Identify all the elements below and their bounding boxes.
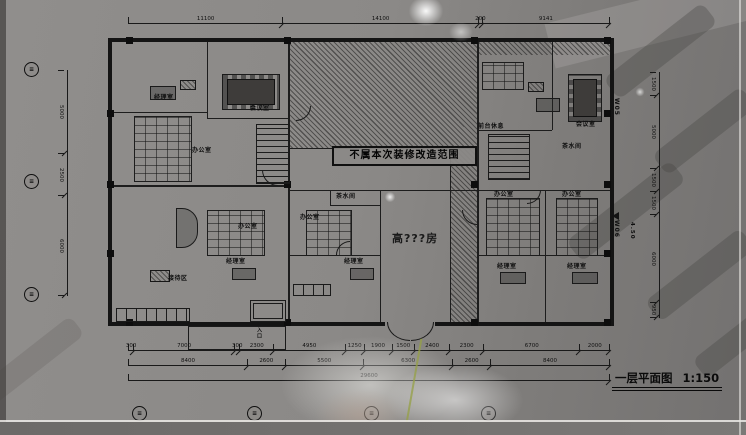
partition <box>207 42 208 118</box>
partition <box>450 148 451 322</box>
dim-value: 11100 <box>197 17 215 22</box>
dim-segment: 7000 <box>134 344 235 350</box>
room-label: 办公室 <box>494 189 514 198</box>
dim-value: 6000 <box>58 239 63 253</box>
dim-value: 1900 <box>371 344 385 349</box>
dim-segment: 1500 <box>650 169 656 192</box>
column <box>604 319 611 326</box>
renovation-scope-banner: 不属本次装修改造范围 <box>332 146 477 166</box>
hatched-box <box>528 82 544 92</box>
watermark-shape <box>692 305 746 379</box>
dim-col-right: 15005000150015006000950 <box>650 72 660 318</box>
desk-cluster <box>134 116 192 182</box>
room-label: 茶水间 <box>336 191 356 200</box>
axis-bubble: ≡ <box>132 406 147 421</box>
desk <box>536 98 560 112</box>
desk <box>232 268 256 280</box>
dim-segment: 6700 <box>484 344 581 350</box>
entrance-door-arc <box>387 322 410 341</box>
axis-bubble: ≡ <box>364 406 379 421</box>
dim-value: 2400 <box>425 344 439 349</box>
dim-value: 6000 <box>650 252 655 266</box>
desk-cluster <box>486 198 540 256</box>
axis-bubble: ≡ <box>247 406 262 421</box>
axis-bubble: ≡ <box>24 287 39 302</box>
dim-value: 8400 <box>543 359 557 364</box>
room-label: 接待区 <box>168 273 188 282</box>
column <box>604 250 611 257</box>
room-label: 经理室 <box>497 261 517 270</box>
room-label: 会议室 <box>250 103 270 112</box>
dim-segment: 2600 <box>453 359 491 365</box>
dim-value: 14100 <box>372 17 390 22</box>
big-room-label: 高???房 <box>392 230 438 246</box>
hatched-area-core <box>288 42 477 148</box>
sofa <box>116 308 190 322</box>
drawing-title-text: 一层平面图 <box>615 371 673 385</box>
partition <box>108 185 288 187</box>
desk <box>500 272 526 284</box>
column <box>604 181 611 188</box>
dim-segment: 5500 <box>286 359 364 365</box>
wall <box>435 322 614 326</box>
window-tag-w05: W05 <box>613 98 620 116</box>
sofa <box>293 284 331 296</box>
hatched-box <box>150 270 170 282</box>
dim-value: 8400 <box>181 359 195 364</box>
dim-segment: 2000 <box>580 344 610 350</box>
dim-value: 5000 <box>58 105 63 119</box>
photo-bottom-strip <box>0 422 746 435</box>
column <box>284 37 291 44</box>
partition <box>110 112 207 113</box>
dim-segment: 1250 <box>346 344 365 350</box>
column <box>471 181 478 188</box>
axis-bubble: ≡ <box>24 174 39 189</box>
stairs <box>488 134 530 180</box>
desk-cluster <box>207 210 265 256</box>
room-label: 经理室 <box>344 256 364 265</box>
partition <box>207 118 288 119</box>
dim-segment: 6000 <box>58 196 64 296</box>
dim-segment: 8400 <box>491 359 610 365</box>
elevation-label: 4.50 <box>629 222 635 240</box>
dim-row-bottom-2: 840026005500630026008400 <box>128 356 610 366</box>
dim-row-bottom-total: 29600 <box>128 371 610 381</box>
column <box>107 110 114 117</box>
column <box>126 37 133 44</box>
dim-row-top: 11100141002009141 <box>128 14 610 24</box>
dim-segment: 1900 <box>365 344 393 350</box>
dandelion-seed <box>634 86 646 98</box>
column <box>604 37 611 44</box>
desk <box>572 272 598 284</box>
watermark-shape <box>0 316 85 409</box>
column <box>107 250 114 257</box>
dim-value: 1250 <box>348 344 362 349</box>
room-label: 经理室 <box>154 92 174 101</box>
photo-left-edge <box>0 0 6 435</box>
column <box>471 319 478 326</box>
desk-cluster <box>556 198 598 256</box>
dim-segment: 29600 <box>128 374 610 380</box>
dim-value: 4950 <box>302 344 316 349</box>
dim-value: 9141 <box>539 17 553 22</box>
dim-value: 2600 <box>465 359 479 364</box>
room-label: 办公室 <box>562 189 582 198</box>
axis-bubble: ≡ <box>24 62 39 77</box>
dim-value: 5000 <box>650 125 655 139</box>
drawing-scale: 1:150 <box>683 371 720 385</box>
dim-value: 2500 <box>58 168 63 182</box>
partition <box>380 190 381 322</box>
dim-segment: 4950 <box>274 344 346 350</box>
dim-segment: 6300 <box>364 359 454 365</box>
dim-segment: 9141 <box>483 17 610 23</box>
dim-segment: 2300 <box>240 344 274 350</box>
drawing-title: 一层平面图1:150 <box>612 370 722 391</box>
column <box>604 110 611 117</box>
dim-value: 950 <box>650 305 655 316</box>
photo-frame-right <box>739 0 741 435</box>
dim-segment: 1500 <box>393 344 415 350</box>
dim-segment: 1500 <box>650 72 656 96</box>
entrance-vestibule <box>250 300 286 322</box>
room-label: 经理室 <box>567 261 587 270</box>
partition <box>545 190 546 322</box>
photo-frame-bottom <box>0 420 746 422</box>
hatched-band <box>450 148 477 322</box>
axis-bubble: ≡ <box>481 406 496 421</box>
dim-value: 2300 <box>250 344 264 349</box>
partition <box>330 205 380 206</box>
dim-value: 2600 <box>259 359 273 364</box>
dim-segment: 14100 <box>283 17 479 23</box>
reception-desk <box>176 208 198 248</box>
dim-row-bottom-1: 3007000300230049501250190015002400230067… <box>128 341 610 351</box>
partition <box>330 190 331 205</box>
room-label: 办公室 <box>238 221 258 230</box>
partition <box>477 130 552 131</box>
room-label: 会议室 <box>576 119 596 128</box>
dim-value: 6700 <box>525 344 539 349</box>
column <box>471 37 478 44</box>
dim-segment: 2600 <box>248 359 286 365</box>
room-label: 办公室 <box>300 212 320 221</box>
dim-segment: 950 <box>650 303 656 318</box>
dim-segment: 11100 <box>128 17 283 23</box>
dim-col-left: 500025006000 <box>58 70 68 296</box>
dim-value: 1500 <box>650 77 655 91</box>
room-label: 茶水间 <box>562 141 582 150</box>
hatched-strip-top <box>477 42 610 55</box>
dim-value: 2000 <box>588 344 602 349</box>
partition <box>288 190 477 191</box>
dim-segment: 6000 <box>650 215 656 303</box>
dim-value: 1500 <box>396 344 410 349</box>
dim-segment: 1500 <box>650 192 656 215</box>
dim-value: 6300 <box>401 359 415 364</box>
window-tag-w06: W06 <box>613 220 620 238</box>
table-top <box>227 79 275 105</box>
dim-segment: 2500 <box>58 154 64 196</box>
hatched-box <box>180 80 196 90</box>
dandelion-seed <box>383 190 397 204</box>
floor-plan-screenshot: 入口 不属本次装修改造范围 经理室 办公室 会议室 办公室 办公室 经理室 接待… <box>0 0 746 435</box>
room-label: 办公室 <box>192 145 212 154</box>
room-label: 前台休息 <box>478 121 504 130</box>
conference-table <box>568 74 602 122</box>
dim-value: 29600 <box>360 374 378 379</box>
dim-value: 7000 <box>177 344 191 349</box>
desk-cluster <box>482 62 524 90</box>
dim-segment: 8400 <box>128 359 248 365</box>
entrance-label: 入口 <box>256 327 263 339</box>
dim-value: 2300 <box>460 344 474 349</box>
dim-value: 5500 <box>317 359 331 364</box>
room-label: 经理室 <box>226 256 246 265</box>
partition <box>552 42 553 130</box>
dim-value: 1500 <box>650 173 655 187</box>
elevation-marker-icon <box>612 212 619 220</box>
dim-value: 1500 <box>650 196 655 210</box>
dim-segment: 5000 <box>58 70 64 154</box>
column <box>107 181 114 188</box>
desk <box>350 268 374 280</box>
dim-segment: 5000 <box>650 96 656 170</box>
table-top <box>573 79 597 117</box>
dim-segment: 2300 <box>450 344 484 350</box>
